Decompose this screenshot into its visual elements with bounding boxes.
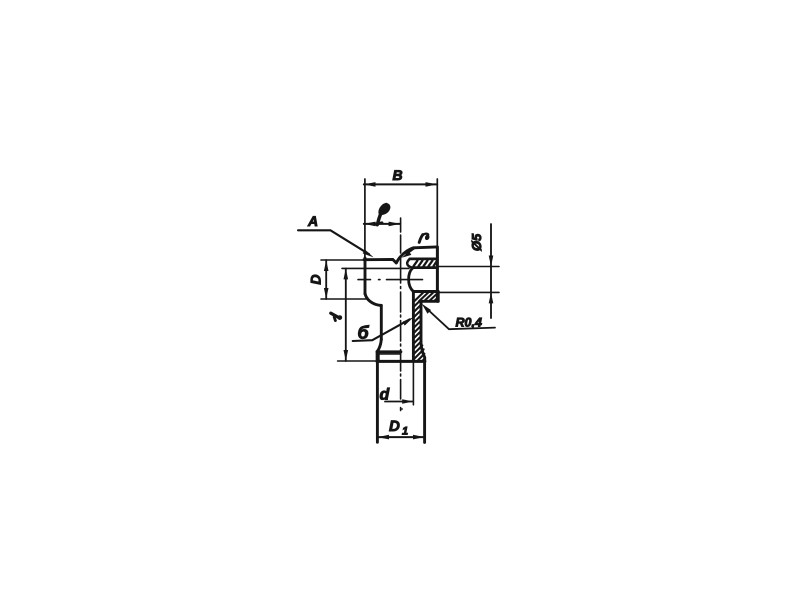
svg-text:1: 1 — [402, 426, 408, 438]
svg-text:A: A — [307, 213, 318, 229]
svg-text:d: d — [380, 387, 391, 404]
svg-text:Ø5: Ø5 — [469, 233, 484, 251]
svg-text:B: B — [393, 167, 403, 183]
svg-text:D: D — [308, 274, 324, 284]
svg-text:D: D — [389, 418, 400, 435]
